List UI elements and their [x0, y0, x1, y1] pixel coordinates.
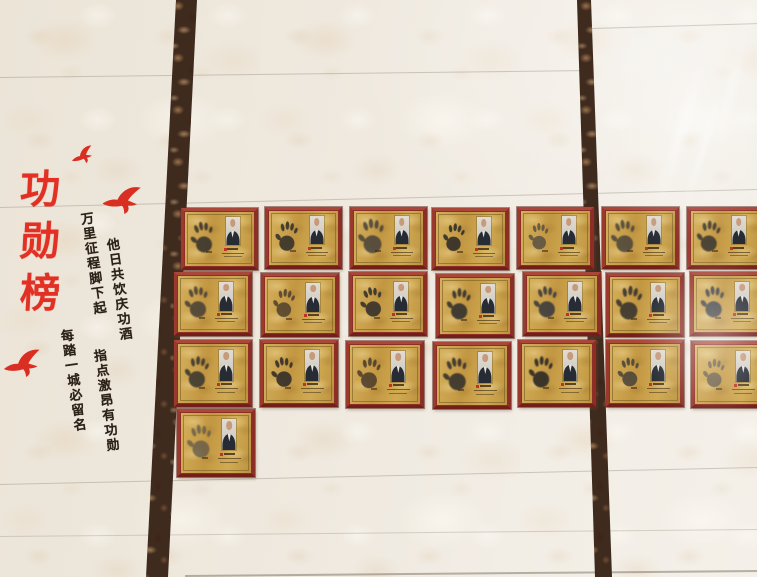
handprint-icon: [699, 354, 728, 393]
signature-text-mark: [627, 250, 633, 252]
person-suit: [732, 230, 745, 245]
name-text-mark: [570, 313, 581, 315]
caption-text-mark: [224, 256, 242, 257]
name-text-mark: [308, 314, 319, 316]
person-head: [224, 284, 230, 292]
caption-text-mark: [474, 390, 497, 391]
person-head: [651, 218, 657, 226]
person-suit: [307, 297, 320, 312]
caption-text-mark: [222, 253, 245, 254]
handprint-icon: [268, 285, 299, 324]
person-head: [399, 284, 405, 292]
person-suit: [392, 366, 405, 382]
handprint-icon: [439, 219, 470, 257]
person-suit: [737, 366, 750, 382]
plaque-gold-plate: [522, 344, 592, 403]
handprint-icon: [613, 352, 644, 393]
person-suit: [477, 231, 490, 246]
plaque-gold-plate: [353, 276, 423, 332]
handprint-icon: [352, 352, 385, 396]
caption-text-mark: [649, 392, 667, 393]
caption-text-mark: [476, 394, 494, 395]
signature-text-mark: [458, 389, 464, 391]
portrait-photo: [651, 350, 665, 381]
person-head: [230, 219, 236, 227]
plaque-gold-plate: [440, 278, 510, 334]
handprint-icon: [180, 350, 214, 395]
portrait-photo: [732, 216, 746, 244]
name-text-mark: [737, 313, 748, 315]
name-text-mark: [396, 247, 407, 249]
name-text-mark: [224, 453, 235, 455]
plaque-gold-plate: [178, 276, 248, 332]
name-text-mark: [478, 248, 489, 250]
plaque-gold-plate: [521, 211, 590, 265]
flying-bird-icon: [1, 346, 45, 381]
plaque-gold-plate: [354, 211, 423, 265]
person-head: [227, 421, 233, 429]
person-head: [740, 284, 746, 292]
signature-text-mark: [206, 251, 212, 253]
person-head: [566, 218, 572, 226]
person-suit: [220, 365, 233, 381]
merit-plaque: [690, 272, 757, 336]
signature-text-mark: [374, 317, 380, 319]
red-seal-mark: [392, 313, 395, 316]
caption-text-mark: [645, 255, 663, 256]
caption-text-mark: [647, 388, 670, 389]
person-head: [483, 354, 489, 362]
merit-plaque: [691, 341, 757, 408]
handprint-icon: [272, 218, 303, 256]
caption-text-mark: [558, 252, 581, 253]
title-char: 功: [19, 170, 61, 210]
name-text-mark: [480, 385, 491, 387]
red-seal-mark: [476, 385, 479, 388]
caption-text-mark: [387, 389, 410, 390]
caption-text-mark: [220, 462, 238, 463]
person-head: [481, 219, 487, 227]
signature-text-mark: [543, 387, 549, 389]
plaque-gold-plate: [436, 212, 505, 266]
person-suit: [306, 365, 319, 381]
portrait-photo: [394, 282, 408, 311]
merit-plaque: [606, 340, 684, 407]
signature-text-mark: [371, 388, 377, 390]
signature-text-mark: [285, 387, 291, 389]
person-head: [314, 218, 320, 226]
caption-text-mark: [217, 392, 235, 393]
caption-text-mark: [390, 318, 413, 319]
portrait-photo: [651, 283, 665, 312]
handprint-icon: [354, 282, 389, 324]
name-text-mark: [221, 383, 232, 385]
plaque-gold-plate: [265, 277, 335, 333]
merit-plaque: [433, 342, 511, 409]
handprint-icon: [607, 216, 642, 259]
red-seal-mark: [389, 384, 392, 387]
plaque-gold-plate: [527, 276, 597, 332]
caption-text-mark: [215, 388, 238, 389]
caption-text-mark: [215, 318, 238, 319]
person-head: [311, 285, 317, 293]
person-suit: [562, 230, 575, 245]
signature-text-mark: [375, 250, 381, 252]
person-suit: [652, 297, 665, 312]
red-seal-mark: [224, 248, 227, 251]
caption-text-mark: [308, 255, 326, 256]
portrait-photo: [310, 216, 324, 244]
handprint-icon: [527, 221, 553, 254]
handprint-icon: [266, 351, 299, 394]
red-seal-mark: [475, 248, 478, 251]
handprint-icon: [610, 281, 648, 328]
merit-plaque: [260, 340, 338, 407]
caption-text-mark: [566, 321, 584, 322]
caption-text-mark: [479, 323, 497, 324]
plaque-gold-plate: [264, 344, 334, 403]
portrait-photo: [478, 352, 492, 383]
person-head: [573, 284, 579, 292]
portrait-photo: [226, 217, 240, 245]
person-suit: [569, 296, 582, 311]
caption-text-mark: [643, 252, 666, 253]
person-head: [396, 353, 402, 361]
person-head: [736, 218, 742, 226]
merit-plaque: [606, 273, 684, 337]
signature-text-mark: [290, 250, 296, 252]
title-char: 榜: [19, 274, 61, 314]
signature-text-mark: [286, 318, 292, 320]
merit-plaque: [349, 272, 427, 336]
red-seal-mark: [393, 247, 396, 250]
portrait-photo: [481, 284, 495, 313]
person-suit: [647, 230, 660, 245]
plaque-gold-plate: [185, 212, 254, 266]
name-text-mark: [483, 315, 494, 317]
name-text-mark: [648, 247, 659, 249]
caption-text-mark: [564, 318, 587, 319]
person-head: [656, 285, 662, 293]
caption-text-mark: [730, 255, 748, 256]
signature-text-mark: [631, 318, 637, 320]
red-seal-mark: [561, 383, 564, 386]
portrait-photo: [563, 350, 577, 381]
caption-text-mark: [393, 255, 411, 256]
red-seal-mark: [220, 453, 223, 456]
caption-text-mark: [477, 320, 500, 321]
name-text-mark: [738, 384, 749, 386]
scene: 功 勋 榜 万里征程脚下起 每踏一城必留名 他日共饮庆功酒 指点激昂有功勋: [0, 0, 757, 577]
name-text-mark: [653, 383, 664, 385]
signature-text-mark: [457, 251, 463, 253]
portrait-photo: [219, 282, 233, 311]
person-suit: [564, 365, 577, 381]
merit-plaque: [517, 207, 594, 269]
red-seal-mark: [645, 247, 648, 250]
handprint-icon: [524, 351, 557, 395]
red-seal-mark: [217, 313, 220, 316]
merit-plaque: [346, 341, 424, 408]
name-text-mark: [565, 383, 576, 385]
person-suit: [226, 231, 239, 246]
red-seal-mark: [308, 247, 311, 250]
merit-plaque: [432, 208, 509, 270]
red-seal-mark: [733, 313, 736, 316]
merit-plaque: [177, 409, 255, 477]
caption-text-mark: [475, 256, 493, 257]
name-text-mark: [227, 248, 238, 250]
merit-plaque: [265, 207, 342, 269]
signature-text-mark: [712, 250, 718, 252]
red-seal-mark: [734, 384, 737, 387]
red-seal-mark: [649, 314, 652, 317]
merit-plaque: [602, 207, 679, 269]
plaque-gold-plate: [269, 211, 338, 265]
merit-plaque: [436, 274, 514, 338]
signature-text-mark: [716, 388, 722, 390]
handprint-icon: [693, 217, 726, 258]
person-head: [486, 286, 492, 294]
caption-text-mark: [301, 388, 324, 389]
person-suit: [479, 367, 492, 383]
handprint-icon: [437, 351, 475, 400]
merit-plaque: [261, 273, 339, 337]
caption-text-mark: [389, 393, 407, 394]
handprint-icon: [180, 282, 214, 325]
signature-text-mark: [548, 317, 554, 319]
person-suit: [310, 230, 323, 245]
name-text-mark: [733, 247, 744, 249]
portrait-photo: [305, 350, 319, 381]
person-head: [224, 352, 230, 360]
person-suit: [395, 296, 408, 311]
handprint-icon: [182, 418, 218, 466]
plaque-gold-plate: [606, 211, 675, 265]
person-head: [399, 218, 405, 226]
plaque-gold-plate: [181, 413, 251, 473]
caption-text-mark: [303, 392, 321, 393]
merit-plaque: [518, 340, 596, 407]
caption-text-mark: [306, 252, 329, 253]
red-seal-mark: [479, 315, 482, 318]
caption-text-mark: [733, 321, 751, 322]
portrait-photo: [477, 217, 491, 245]
portrait-photo: [647, 216, 661, 244]
signature-text-mark: [542, 250, 548, 252]
merit-plaque: [350, 207, 427, 269]
merit-plaque: [174, 340, 252, 407]
handprint-icon: [529, 282, 563, 324]
name-text-mark: [307, 383, 318, 385]
signature-text-mark: [715, 317, 721, 319]
plaque-gold-plate: [178, 344, 248, 403]
handprint-icon: [354, 215, 390, 260]
name-text-mark: [221, 313, 232, 315]
handprint-icon: [697, 283, 729, 324]
merit-plaque: [523, 272, 601, 336]
red-seal-mark: [649, 383, 652, 386]
caption-text-mark: [559, 388, 582, 389]
red-seal-mark: [560, 247, 563, 250]
merit-plaque: [687, 207, 757, 269]
plaque-gold-plate: [610, 344, 680, 403]
person-suit: [736, 296, 749, 311]
person-head: [568, 352, 574, 360]
portrait-photo: [735, 282, 749, 311]
signature-text-mark: [199, 317, 205, 319]
portrait-photo: [736, 351, 750, 382]
caption-text-mark: [647, 319, 670, 320]
name-text-mark: [563, 247, 574, 249]
signature-text-mark: [631, 387, 637, 389]
honor-board-title: 功 勋 榜: [12, 170, 68, 314]
caption-text-mark: [728, 252, 751, 253]
handprint-icon: [443, 285, 475, 326]
merit-plaque: [174, 272, 252, 336]
name-text-mark: [653, 314, 664, 316]
name-text-mark: [396, 313, 407, 315]
portrait-photo: [222, 419, 236, 450]
plaque-gold-plate: [437, 346, 507, 405]
plaque-gold-plate: [695, 345, 757, 404]
flying-bird-icon: [101, 184, 143, 216]
person-suit: [223, 434, 236, 450]
caption-text-mark: [649, 322, 667, 323]
portrait-photo: [306, 283, 320, 312]
name-text-mark: [393, 384, 404, 386]
portrait-photo: [219, 350, 233, 381]
portrait-photo: [562, 216, 576, 244]
caption-text-mark: [218, 458, 241, 459]
portrait-photo: [568, 282, 582, 311]
red-seal-mark: [303, 383, 306, 386]
caption-text-mark: [392, 321, 410, 322]
person-suit: [395, 230, 408, 245]
person-head: [310, 352, 316, 360]
name-text-mark: [311, 247, 322, 249]
portrait-photo: [395, 216, 409, 244]
caption-text-mark: [732, 389, 755, 390]
red-seal-mark: [304, 314, 307, 317]
red-seal-mark: [730, 247, 733, 250]
caption-text-mark: [391, 252, 414, 253]
signature-text-mark: [202, 457, 208, 459]
caption-text-mark: [734, 393, 752, 394]
person-head: [741, 353, 747, 361]
signature-text-mark: [199, 387, 205, 389]
caption-text-mark: [302, 319, 325, 320]
person-suit: [220, 296, 233, 311]
portrait-photo: [391, 351, 405, 382]
person-suit: [652, 365, 665, 381]
title-char: 勋: [19, 222, 61, 262]
caption-text-mark: [561, 392, 579, 393]
signature-text-mark: [461, 319, 467, 321]
caption-text-mark: [731, 318, 754, 319]
handprint-icon: [186, 217, 221, 260]
plaque-gold-plate: [610, 277, 680, 333]
caption-text-mark: [217, 321, 235, 322]
red-seal-mark: [217, 383, 220, 386]
red-seal-mark: [566, 313, 569, 316]
person-suit: [482, 298, 495, 313]
plaque-gold-plate: [691, 211, 757, 265]
caption-text-mark: [560, 255, 578, 256]
caption-text-mark: [304, 322, 322, 323]
plaque-gold-plate: [694, 276, 757, 332]
caption-text-mark: [473, 253, 496, 254]
person-head: [656, 352, 662, 360]
merit-plaque: [181, 208, 258, 270]
plaque-gold-plate: [350, 345, 420, 404]
